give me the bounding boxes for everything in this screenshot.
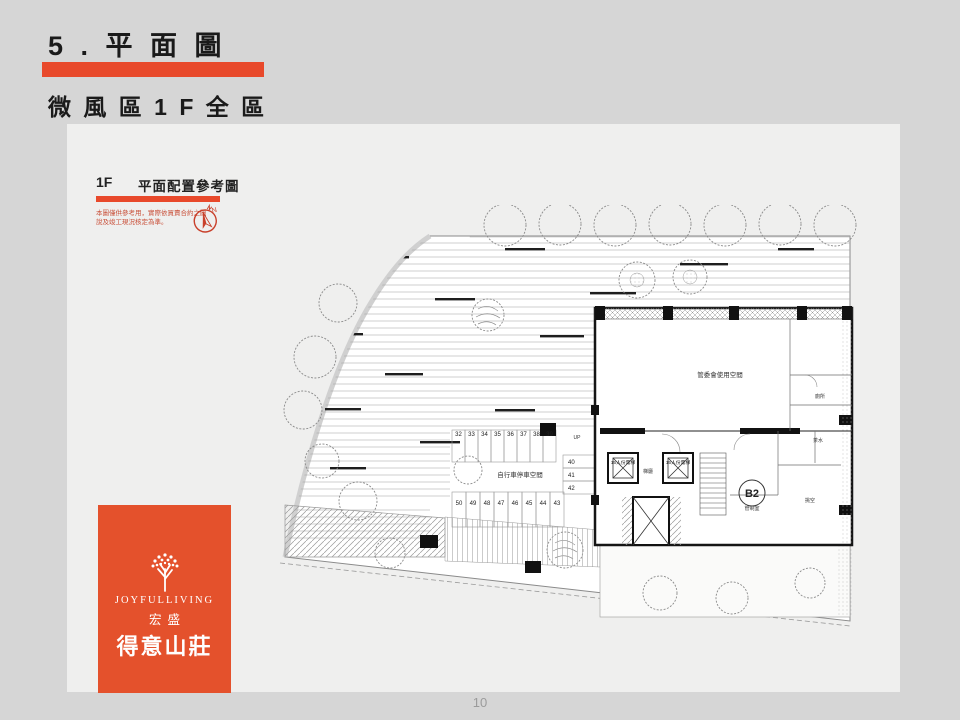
slide: 5 . 平 面 圖 微 風 區 1 F 全 區 1F 平面配置參考圖 本圖僅供參… — [0, 0, 960, 720]
up-label: UP — [574, 435, 582, 441]
parking-number: 42 — [564, 483, 594, 496]
parking-number: 49 — [466, 501, 480, 507]
brand-name-en: JOYFULLIVING — [115, 595, 214, 606]
main-room-label: 管委會使用空間 — [697, 370, 743, 379]
parking-number: 34 — [478, 432, 491, 438]
parking-number: 43 — [550, 501, 564, 507]
pantry-label: 茶水 — [813, 437, 823, 444]
parking-number: 47 — [494, 501, 508, 507]
tree-logo-icon — [147, 551, 183, 593]
parking-number: 39 — [543, 432, 556, 438]
parking-number: 50 — [452, 501, 466, 507]
parking-number: 44 — [536, 501, 550, 507]
slide-title: 5 . 平 面 圖 — [48, 24, 227, 63]
compass-n-label: N — [211, 207, 218, 215]
control-room-label: 管制室 — [744, 505, 759, 512]
parking-number: 38 — [530, 432, 543, 438]
parking-number: 33 — [465, 432, 478, 438]
building — [591, 306, 852, 545]
panel-accent-bar — [96, 196, 220, 202]
floor-plan-drawing: 管委會使用空間 自行車停車空間 B2 管制室 梯廳 挑空 廁所 茶水 UP — [270, 205, 880, 655]
elevator-label: 15人份電梯 — [609, 461, 637, 467]
lobby-label: 梯廳 — [643, 468, 653, 475]
elevator-icon — [663, 453, 693, 483]
floor-tag: 1F — [96, 174, 112, 190]
floorplan-panel: 1F 平面配置參考圖 本圖僅供參考用，實際依買賣合約之圖 說及竣工現況核定為準。… — [67, 124, 900, 692]
bike-area-label: 自行車停車空間 — [497, 470, 543, 479]
parking-number: 45 — [522, 501, 536, 507]
void-label: 挑空 — [805, 497, 815, 504]
brand-project-name: 得意山莊 — [116, 629, 212, 661]
parking-number: 48 — [480, 501, 494, 507]
parking-row-top: 3233343536373839 — [452, 432, 556, 438]
parking-number: 41 — [564, 470, 594, 483]
parking-number: 36 — [504, 432, 517, 438]
planting-band — [470, 213, 850, 237]
lightwell-icon — [622, 497, 681, 545]
parking-row-bottom: 5049484746454443 — [452, 501, 564, 507]
parking-number: 46 — [508, 501, 522, 507]
courtyard — [600, 545, 850, 617]
panel-header-title: 平面配置參考圖 — [138, 175, 240, 195]
b2-label: B2 — [745, 488, 759, 500]
page-number: 10 — [0, 695, 960, 710]
stairs-icon — [700, 453, 726, 515]
parking-column-side: 404142 — [564, 457, 594, 496]
parking-number: 32 — [452, 432, 465, 438]
title-accent-bar — [42, 62, 264, 77]
elevator-icon — [608, 453, 638, 483]
brand-company: 宏盛 — [143, 609, 186, 628]
toilet-label: 廁所 — [815, 393, 825, 400]
floor-plan: 管委會使用空間 自行車停車空間 B2 管制室 梯廳 挑空 廁所 茶水 UP 32… — [270, 205, 880, 655]
parking-number: 40 — [564, 457, 594, 470]
slide-subtitle: 微 風 區 1 F 全 區 — [48, 88, 267, 122]
compass-icon: N — [189, 204, 221, 236]
elevator-label: 15人份電梯 — [664, 461, 692, 467]
parking-number: 37 — [517, 432, 530, 438]
brand-logo-block: JOYFULLIVING 宏盛 得意山莊 — [98, 505, 231, 693]
parking-number: 35 — [491, 432, 504, 438]
